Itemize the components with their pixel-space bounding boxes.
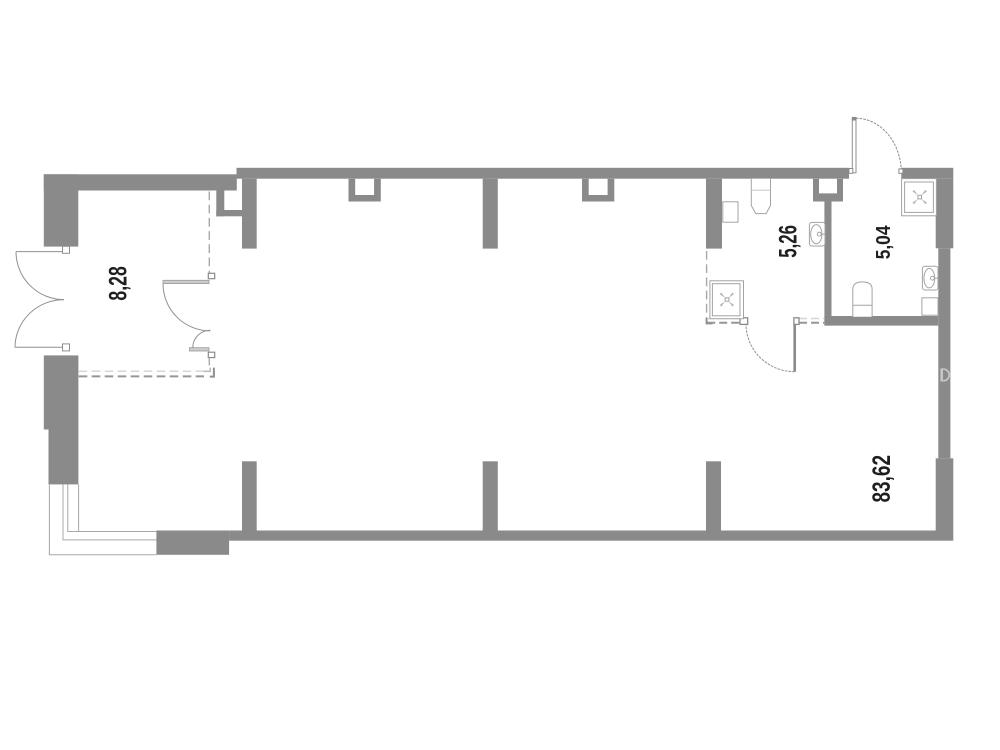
svg-text:5,26: 5,26 [776,225,803,258]
svg-text:83,62: 83,62 [869,455,896,503]
svg-text:8,28: 8,28 [106,266,133,300]
svg-text:5,04: 5,04 [873,225,895,260]
